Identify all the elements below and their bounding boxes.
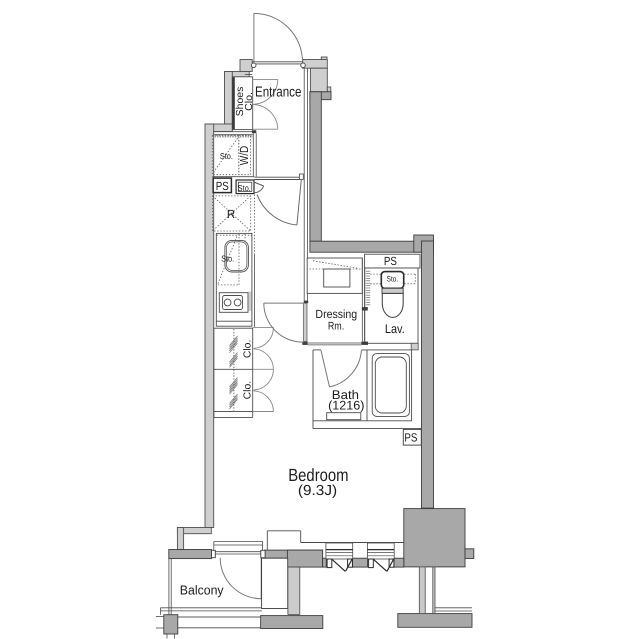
svg-text:Rm.: Rm. <box>328 321 344 333</box>
svg-text:Sto.: Sto. <box>221 253 234 263</box>
svg-text:Clo.: Clo. <box>244 92 255 111</box>
svg-text:(9.3J): (9.3J) <box>298 483 337 499</box>
svg-text:Dressing: Dressing <box>315 307 357 321</box>
svg-text:PS: PS <box>384 254 397 268</box>
svg-text:Sto.: Sto. <box>220 151 233 161</box>
svg-text:PS: PS <box>404 431 417 445</box>
svg-text:Clo.: Clo. <box>242 340 253 358</box>
svg-text:(1216): (1216) <box>328 398 364 412</box>
svg-text:Sto.: Sto. <box>387 274 399 283</box>
svg-text:Balcony: Balcony <box>180 583 224 598</box>
svg-text:R: R <box>227 207 236 221</box>
svg-text:Lav.: Lav. <box>385 322 405 336</box>
svg-text:W/D: W/D <box>238 146 251 166</box>
svg-text:Sto.: Sto. <box>238 183 251 193</box>
svg-text:Entrance: Entrance <box>255 84 301 100</box>
svg-text:PS: PS <box>216 179 229 193</box>
svg-text:Clo.: Clo. <box>242 381 253 399</box>
